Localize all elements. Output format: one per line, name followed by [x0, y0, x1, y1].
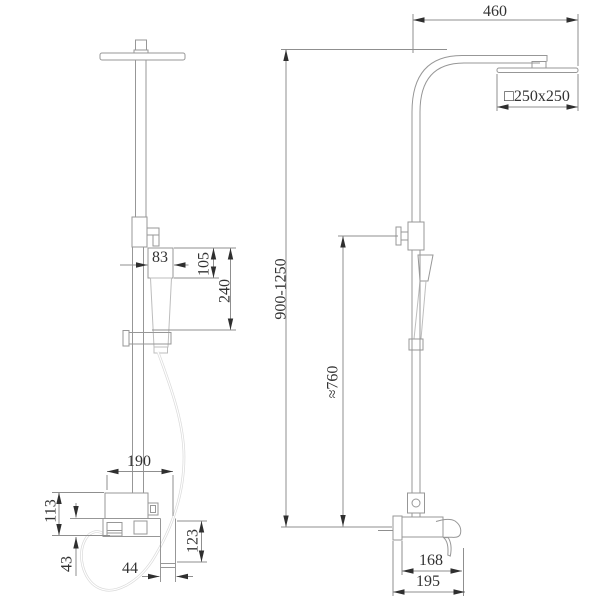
dim-label-83: 83 [152, 249, 168, 266]
dim-label-195: 195 [416, 573, 440, 590]
mixer-side-knob-inner [151, 506, 156, 513]
handle-front [134, 521, 147, 534]
dim-label-168: 168 [419, 552, 443, 569]
dim-column-height: 900-1250 [273, 50, 447, 531]
overhead-shower-plate [100, 53, 185, 60]
hand-shower-cap [154, 347, 168, 353]
dim-spout-drop: 43 [59, 503, 76, 576]
lower-riser-pipe-side [412, 250, 420, 493]
spout-front [107, 523, 122, 537]
connector-screw [412, 499, 420, 507]
dim-label-113: 113 [43, 499, 60, 522]
dim-label-105: 105 [196, 252, 213, 276]
dim-label-760: ≈760 [325, 366, 342, 399]
head-connector-side [532, 62, 546, 69]
head-connector [136, 40, 147, 50]
dim-label-43: 43 [59, 556, 76, 572]
dim-spout-width: 44 [122, 560, 193, 577]
upper-riser-pipe [136, 60, 147, 217]
wall-mount-plate [393, 516, 402, 540]
shower-system-drawing: 83 105 240 190 113 43 44 123 [0, 0, 600, 600]
overhead-shower-plate-side [497, 68, 578, 73]
technical-drawing-page: 83 105 240 190 113 43 44 123 [0, 0, 600, 600]
head-connector-flange [134, 50, 148, 53]
slide-bracket [123, 331, 171, 347]
diverter-knob-stem [401, 232, 408, 240]
diverter-block [132, 217, 147, 247]
dim-label-123: 123 [185, 529, 202, 553]
dim-label-190: 190 [127, 453, 151, 470]
front-view [70, 40, 185, 590]
dim-mixer-width: 190 [107, 453, 173, 516]
riser-pipe-and-arm [412, 56, 547, 223]
dim-hand-shower-length: 105 [174, 248, 236, 278]
mixer-side-knob [148, 503, 158, 515]
pipe-connector-block [408, 493, 425, 517]
dim-spout-reach: 168 [402, 541, 462, 575]
hand-shower-wand [151, 278, 172, 347]
dim-head-size: □250x250 [497, 74, 578, 111]
dim-hand-shower-width: 83 [120, 249, 189, 266]
dim-hand-shower-height: ≈760 [325, 236, 398, 527]
dim-label-250x250: □250x250 [504, 88, 570, 105]
dim-spout-height: 123 [177, 521, 207, 562]
slide-bracket-side [409, 339, 423, 350]
spout-side [436, 519, 461, 537]
dim-arm-reach: 460 [413, 3, 578, 66]
diverter-lever [147, 228, 159, 246]
dim-label-240: 240 [217, 279, 234, 303]
dim-label-900-1250: 900-1250 [273, 258, 290, 319]
mixer-lever-side [444, 538, 452, 557]
dim-label-460: 460 [483, 3, 507, 20]
mixer-upper-body [105, 493, 148, 519]
mixer-lower-body [70, 519, 161, 537]
mixer-body-side [402, 517, 443, 537]
diverter-block-side [396, 222, 424, 250]
side-view [393, 56, 578, 557]
dim-label-44: 44 [122, 560, 138, 577]
